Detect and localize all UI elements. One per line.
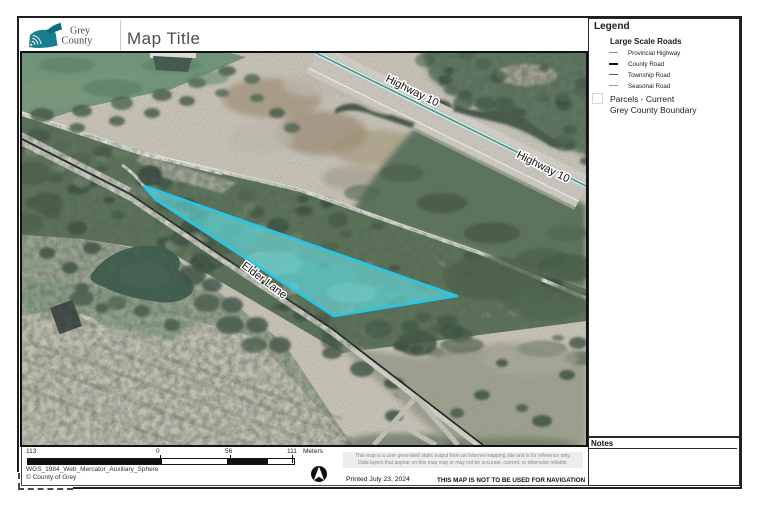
svg-text:County: County xyxy=(62,36,94,47)
